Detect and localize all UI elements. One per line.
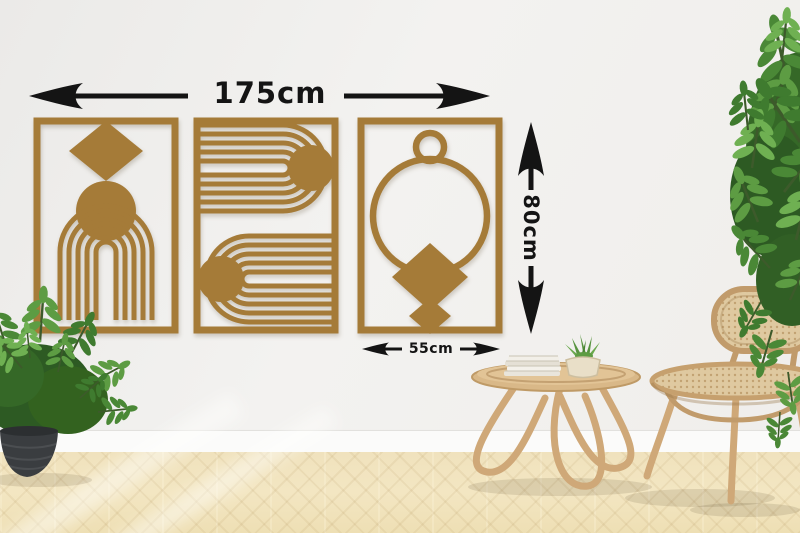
art-panel-ring-diamonds — [357, 117, 503, 334]
art-panel-arcs-circles — [193, 117, 339, 334]
width-dimension-label: 175cm — [195, 76, 345, 110]
height-dimension-label: 80cm — [519, 194, 543, 262]
diamond-shape — [69, 121, 143, 181]
circle-shape — [288, 145, 334, 191]
right-arrow-icon — [459, 342, 501, 356]
height-dimension: 80cm — [517, 120, 545, 336]
panel-width-dimension: 55cm — [360, 341, 502, 357]
right-arrow-icon — [342, 83, 492, 109]
down-arrow-icon — [518, 264, 544, 336]
herringbone-floor — [0, 452, 800, 533]
up-arrow-icon — [518, 120, 544, 192]
baseboard — [0, 430, 800, 453]
panel-width-dimension-label: 55cm — [409, 341, 453, 357]
art-panel-diamond-arch — [33, 117, 179, 334]
striped-arch — [60, 206, 152, 320]
left-arrow-icon — [361, 342, 403, 356]
circle-shape — [198, 256, 244, 302]
height-dimension-label-wrap: 80cm — [517, 196, 545, 260]
scene: 175cm 80cm 55cm — [0, 0, 800, 533]
left-arrow-icon — [27, 83, 190, 109]
